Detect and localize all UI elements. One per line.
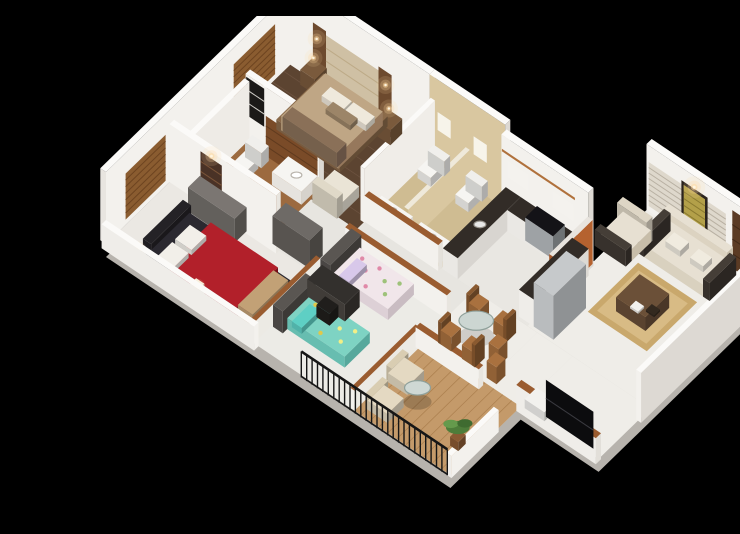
art-spot-glow [201, 146, 221, 166]
plant-foliage-c [457, 419, 472, 427]
render-canvas [40, 16, 740, 518]
apartment-3d-floor-plan-render [40, 16, 740, 518]
sconce-glow-left [308, 30, 326, 48]
balcony-glass-table [405, 381, 431, 395]
balcony-table-shadow [403, 394, 431, 410]
isometric-scene [40, 16, 740, 518]
plant-foliage-b [443, 420, 458, 428]
kitchen-sink [474, 221, 486, 228]
master-bathroom-basin [291, 172, 302, 178]
table-lamp-glow-left [304, 49, 322, 67]
art-spotlight-glow [683, 176, 705, 198]
dining-glass-table [459, 311, 494, 330]
sconce-glow-right [377, 76, 395, 94]
